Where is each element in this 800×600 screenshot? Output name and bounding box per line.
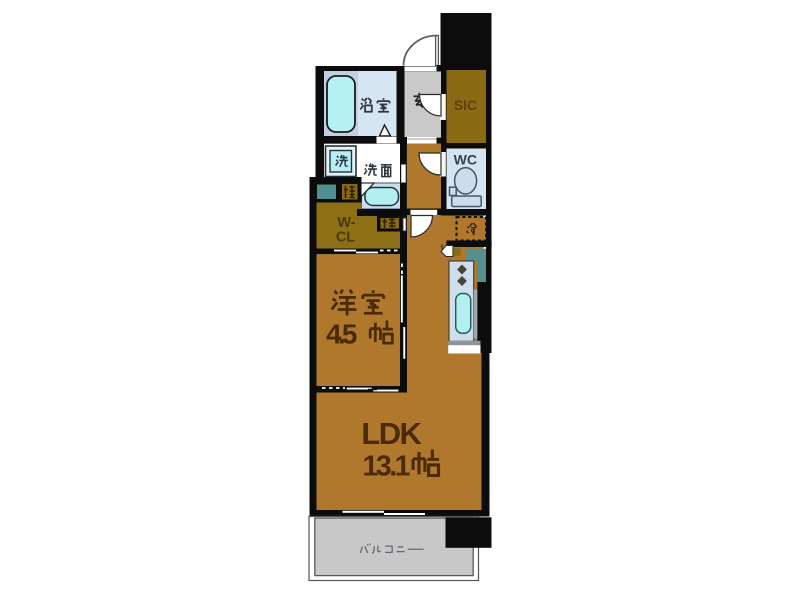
svg-text:13.1: 13.1 xyxy=(363,451,411,483)
svg-text:LDK: LDK xyxy=(361,416,422,451)
svg-text:CL: CL xyxy=(336,230,355,246)
svg-text:4.5: 4.5 xyxy=(326,319,358,350)
svg-text:SIC: SIC xyxy=(454,97,477,113)
svg-text:WC: WC xyxy=(454,152,477,168)
